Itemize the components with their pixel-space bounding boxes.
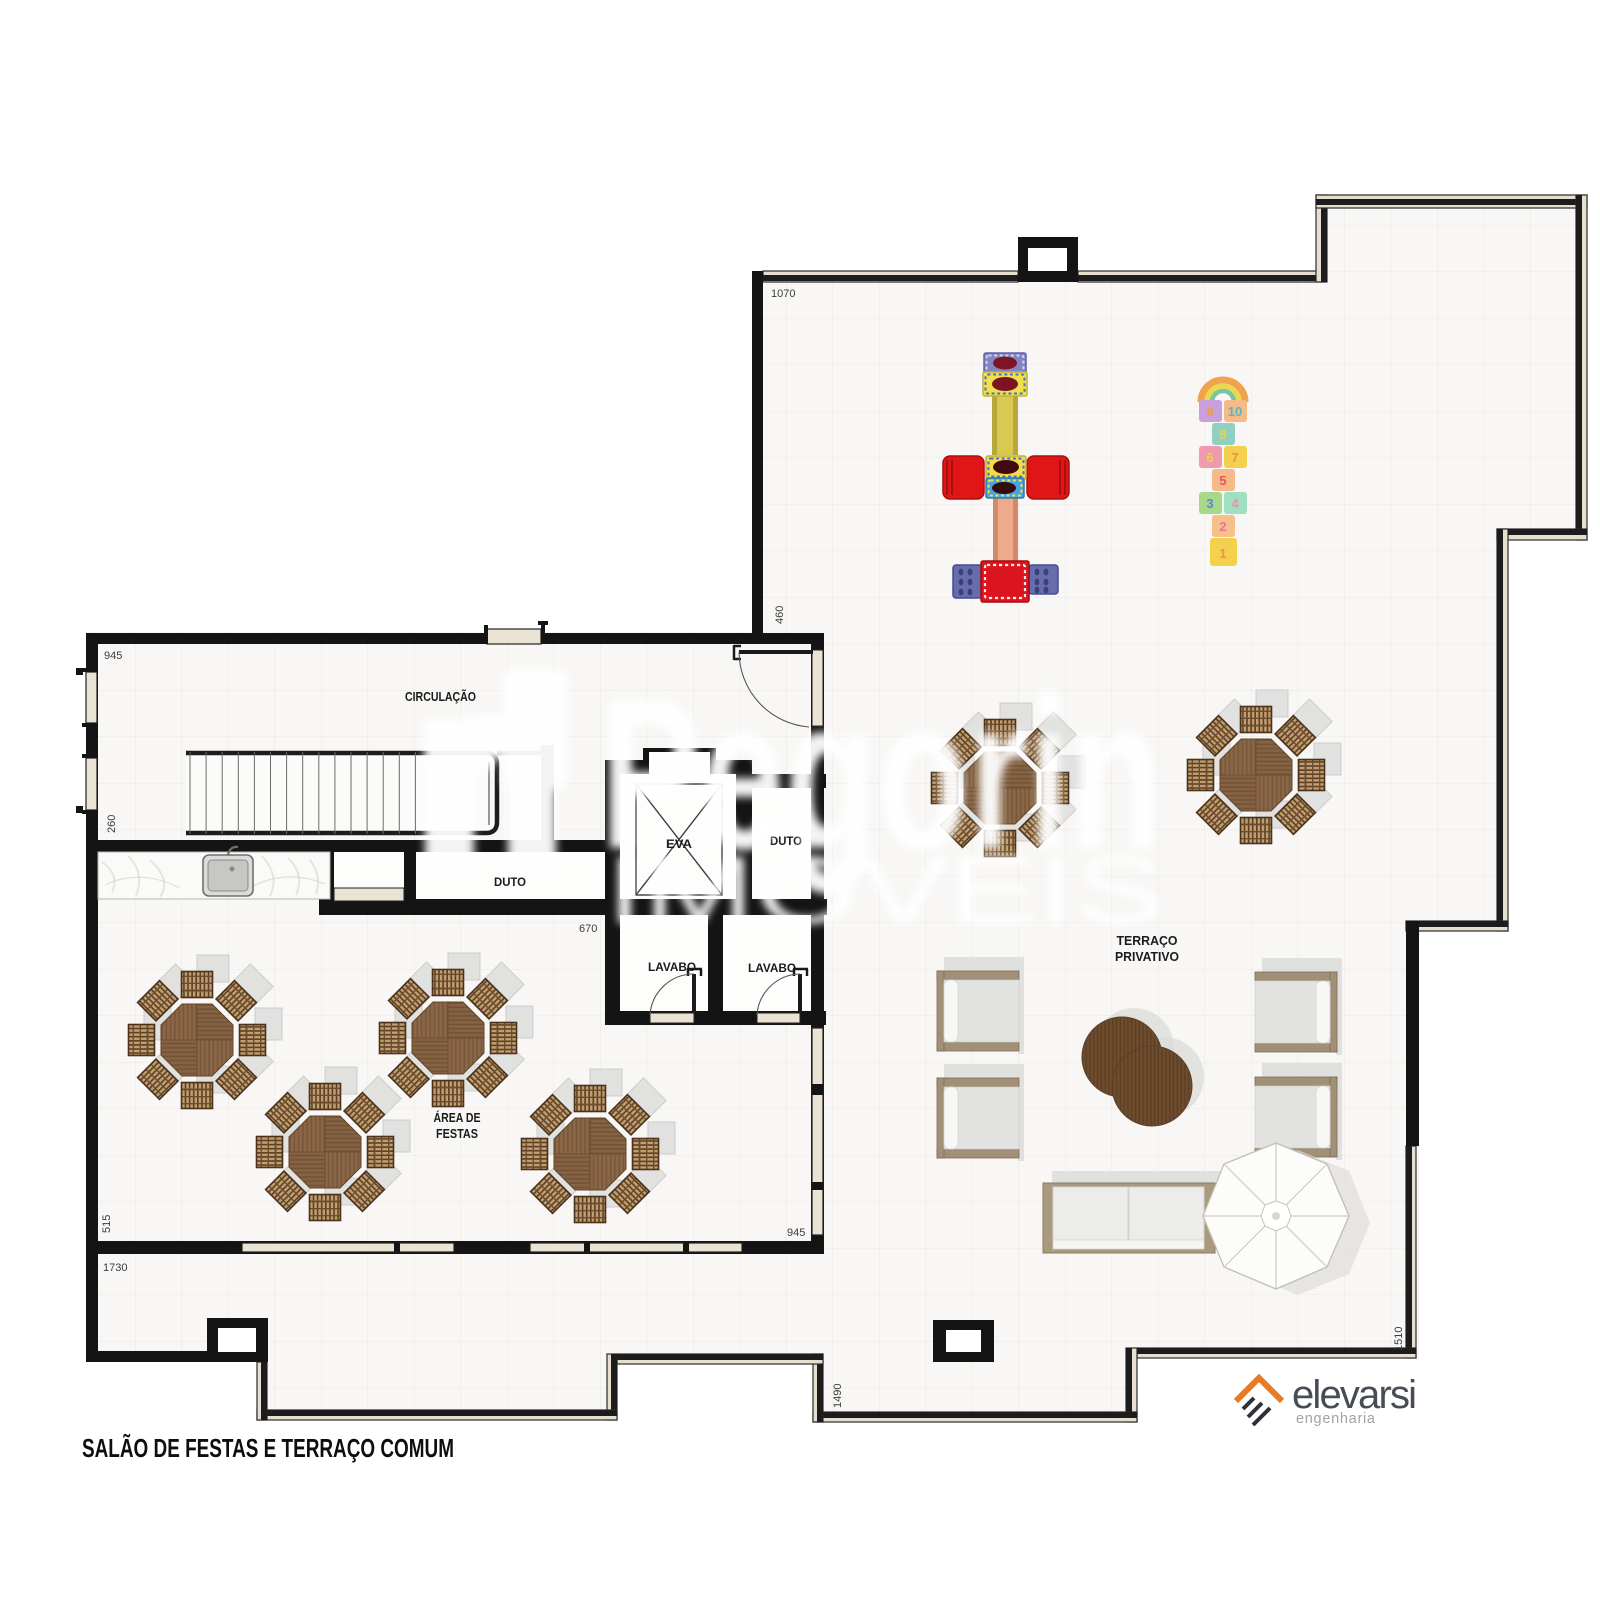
svg-text:ÁREA DE: ÁREA DE: [434, 1110, 481, 1125]
svg-text:6: 6: [1206, 450, 1213, 465]
svg-text:4: 4: [1231, 496, 1239, 511]
svg-text:1510: 1510: [1393, 1327, 1405, 1351]
svg-text:CIRCULAÇÃO: CIRCULAÇÃO: [405, 689, 476, 704]
svg-text:LAVABO: LAVABO: [648, 960, 696, 974]
svg-text:IMÓVEIS: IMÓVEIS: [606, 837, 1164, 944]
svg-text:1490: 1490: [832, 1384, 844, 1408]
svg-text:460: 460: [774, 606, 786, 624]
svg-text:260: 260: [106, 815, 118, 833]
svg-text:PRIVATIVO: PRIVATIVO: [1115, 950, 1179, 964]
svg-text:5: 5: [1219, 473, 1226, 488]
svg-text:SALÃO DE FESTAS E TERRAÇO COMU: SALÃO DE FESTAS E TERRAÇO COMUM: [82, 1433, 454, 1463]
svg-text:3: 3: [1206, 496, 1213, 511]
svg-text:8: 8: [1219, 427, 1226, 442]
svg-text:7: 7: [1231, 450, 1238, 465]
svg-text:945: 945: [104, 650, 122, 662]
svg-text:1: 1: [1219, 546, 1226, 561]
svg-text:515: 515: [101, 1215, 113, 1233]
svg-text:945: 945: [787, 1227, 805, 1239]
svg-text:engenharia: engenharia: [1296, 1411, 1376, 1427]
svg-text:2: 2: [1219, 519, 1226, 534]
svg-text:FESTAS: FESTAS: [436, 1127, 478, 1141]
svg-text:670: 670: [579, 923, 597, 935]
svg-text:DUTO: DUTO: [494, 875, 526, 889]
svg-text:1730: 1730: [103, 1262, 127, 1274]
svg-text:9: 9: [1206, 404, 1213, 419]
svg-text:1070: 1070: [771, 288, 795, 300]
svg-text:10: 10: [1228, 404, 1242, 419]
svg-text:LAVABO: LAVABO: [748, 961, 796, 975]
